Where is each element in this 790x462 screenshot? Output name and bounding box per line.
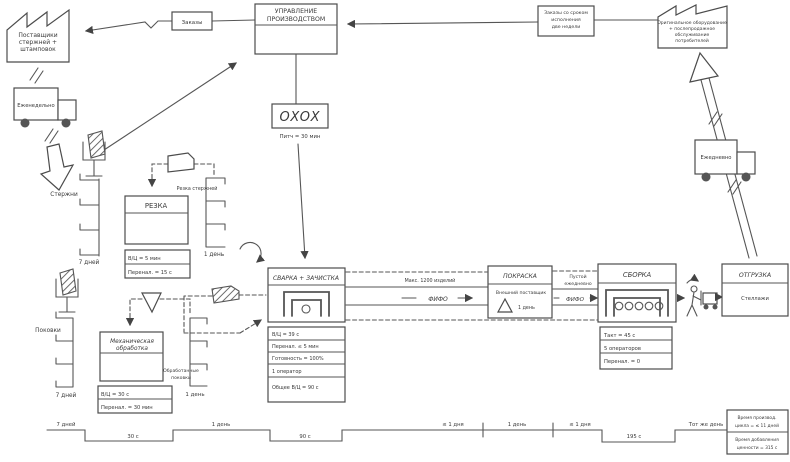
orders-flow: Заказы xyxy=(86,12,255,31)
process-title: СБОРКА xyxy=(623,271,652,279)
timeline-step: 1 день xyxy=(212,422,231,428)
timeline-step: 1 день xyxy=(508,422,527,428)
cutting-kanban xyxy=(152,153,214,186)
signal-kanban-icon xyxy=(142,293,161,312)
process-title: обработка xyxy=(116,346,148,352)
kanban-card-icon xyxy=(60,269,76,295)
inventory-label: Обработанные xyxy=(163,368,199,374)
process-welding: СВАРКА + ЗАЧИСТКА В/Ц = 39 с Перенал. ≤ … xyxy=(268,268,345,402)
data-row: Перенал. = 30 мин xyxy=(101,405,153,411)
timeline-summary: Время производ. цикла = ≤ 11 дней Время … xyxy=(727,410,788,454)
kanban-path xyxy=(184,296,240,333)
data-row: Общее В/Ц = 90 с xyxy=(272,385,319,391)
customer-orders-label: две недели xyxy=(552,25,581,30)
timeline-step: 7 дней xyxy=(57,421,76,428)
process-title: СВАРКА + ЗАЧИСТКА xyxy=(273,275,339,282)
kanban-path xyxy=(160,299,190,314)
heijunka: OXOX Питч = 30 мин xyxy=(272,54,328,258)
material-handler xyxy=(678,279,722,316)
heijunka-label: OXOX xyxy=(279,110,320,125)
inventory-days: 7 дней xyxy=(56,392,77,399)
shipment-arrow-head xyxy=(690,53,718,82)
customer-factory: Оригинальное оборудование + послепродажн… xyxy=(657,5,727,48)
electronic-info-arrow xyxy=(86,21,172,31)
supermarket-icon xyxy=(80,174,99,256)
inventory-days: 7 дней xyxy=(79,259,100,266)
vsm-canvas: Поставщики стержней + штамповок Еженедел… xyxy=(0,0,790,462)
fifo-cap-label: Пустой xyxy=(569,273,586,280)
inventory-label: Поковки xyxy=(35,328,61,334)
customer-orders-label: Заказы со сроком xyxy=(544,10,588,16)
supplier-shipment: Еженедельно xyxy=(14,68,76,190)
schedule-arrow xyxy=(298,144,305,258)
motion-arrow-icon xyxy=(687,279,698,283)
value-added-value: ценности = 315 с xyxy=(737,445,778,451)
timeline-step: ≤ 1 дня xyxy=(442,422,464,428)
customer-name: Оригинальное оборудование xyxy=(657,20,727,26)
inventory-label: Стержни xyxy=(50,192,78,198)
push-arrow-icon xyxy=(41,144,73,190)
timeline-step: 195 с xyxy=(627,434,642,440)
supplier-name: стержней + xyxy=(19,39,57,46)
timeline-step: Тот же день xyxy=(688,422,723,428)
kanban-to-control-arrow xyxy=(104,63,236,150)
value-added-label: Время добавления xyxy=(735,436,779,443)
info-line xyxy=(212,20,255,21)
supplier-name: штамповок xyxy=(20,46,56,53)
customer-name: + послепродажное xyxy=(669,26,715,32)
truck-frequency: Еженедельно xyxy=(17,103,54,109)
process-title: ПОКРАСКА xyxy=(503,273,537,280)
kanban-arrow xyxy=(240,320,261,333)
operator-with-cart-icon xyxy=(687,286,718,316)
orders-label: Заказы xyxy=(182,20,203,26)
inventory-days: 1 день xyxy=(185,392,204,398)
data-row: В/Ц = 5 мин xyxy=(128,256,161,262)
kanban-card-icon xyxy=(88,131,105,158)
kanban-path xyxy=(130,299,142,315)
data-row: Перенал. = 15 с xyxy=(128,270,172,276)
value-stream-map: Поставщики стержней + штамповок Еженедел… xyxy=(0,0,790,462)
machining-kanban xyxy=(130,293,190,325)
shipment-slash-icon xyxy=(30,68,43,83)
control-title: УПРАВЛЕНИЕ xyxy=(275,8,317,15)
batch-kanban xyxy=(184,286,266,333)
data-row: Перенал. ≤ 5 мин xyxy=(272,344,319,350)
kanban-card-icon xyxy=(168,153,194,172)
fifo-lane-1: Макс. 1200 изделий ФИФО xyxy=(346,272,597,320)
process-title: РЕЗКА xyxy=(145,202,168,210)
fifo-label: ФИФО xyxy=(566,297,585,303)
fifo-cap-label: Макс. 1200 изделий xyxy=(405,277,456,284)
timeline-step: 30 с xyxy=(127,434,138,440)
supermarket-icon xyxy=(190,318,207,386)
customer-shipment: Ежедневно xyxy=(690,53,757,258)
truck-icon: Еженедельно xyxy=(14,88,76,128)
pitch-label: Питч = 30 мин xyxy=(280,134,321,140)
control-title: ПРОИЗВОДСТВОМ xyxy=(267,16,325,23)
timeline: 7 дней 30 с 1 день 90 с ≤ 1 дня 1 день ≤… xyxy=(47,410,788,454)
inventory-days: 1 день xyxy=(518,305,535,311)
process-title: ОТГРУЗКА xyxy=(739,272,771,279)
lead-time-label: Время производ. xyxy=(737,415,776,421)
inventory-days: 1 день xyxy=(204,252,225,258)
truck-frequency: Ежедневно xyxy=(701,155,732,161)
shipment-slash-icon xyxy=(45,129,58,143)
production-control: УПРАВЛЕНИЕ ПРОИЗВОДСТВОМ xyxy=(255,4,337,54)
data-row: 1 оператор xyxy=(272,369,302,375)
process-cutting: РЕЗКА В/Ц = 5 мин Перенал. = 15 с xyxy=(125,196,190,278)
fifo-cap-label: ежедневно xyxy=(564,282,592,287)
kanban-path xyxy=(152,164,168,175)
timeline-ladder xyxy=(47,430,727,442)
inventory-label: поковки xyxy=(171,376,191,381)
fifo-label: ФИФО xyxy=(428,296,448,303)
data-row: В/Ц = 30 с xyxy=(101,392,129,398)
truck-icon: Ежедневно xyxy=(695,140,755,182)
lead-time-value: цикла = ≤ 11 дней xyxy=(735,422,779,429)
process-machining: Механическая обработка В/Ц = 30 с Перена… xyxy=(98,332,172,413)
shipping-note: Стеллажи xyxy=(741,296,769,302)
customer-orders-flow: Заказы со сроком исполнения две недели xyxy=(348,6,658,36)
timeline-step: 90 с xyxy=(299,434,310,440)
kanban-post-1 xyxy=(83,63,236,176)
data-row: В/Ц = 39 с xyxy=(272,332,299,338)
external-supplier-label: Внешний поставщик xyxy=(496,289,546,296)
forgings-supermarket: Поковки 7 дней xyxy=(35,312,76,399)
process-assembly: СБОРКА Такт = 45 с 5 операторов Перенал.… xyxy=(598,264,676,369)
batch-kanban-icon xyxy=(212,286,239,303)
kanban-post-2 xyxy=(56,269,78,312)
supermarket-icon xyxy=(56,312,73,387)
process-title: Механическая xyxy=(110,339,154,345)
fifo-lane-2: Пустой ежедневно ФИФО xyxy=(553,271,598,305)
supplier-factory: Поставщики стержней + штамповок xyxy=(7,10,69,62)
data-row: Перенал. = 0 xyxy=(604,359,640,365)
data-row: Готовность = 100% xyxy=(272,356,324,362)
customer-name: потребителей xyxy=(675,37,709,44)
supplier-name: Поставщики xyxy=(18,32,57,39)
data-row: Такт = 45 с xyxy=(603,333,635,339)
process-painting: ПОКРАСКА Внешний поставщик 1 день xyxy=(488,266,552,318)
process-shipping: ОТГРУЗКА Стеллажи xyxy=(722,264,788,316)
info-arrow xyxy=(348,22,538,24)
inventory-label: Резка стержней xyxy=(177,185,218,192)
kanban-path xyxy=(194,164,214,176)
data-row: 5 операторов xyxy=(604,346,641,352)
withdrawal-loop-icon xyxy=(240,242,261,262)
customer-orders-label: исполнения xyxy=(551,18,581,23)
timeline-step: ≤ 1 дня xyxy=(569,422,591,428)
customer-name: обслуживание xyxy=(675,32,710,38)
